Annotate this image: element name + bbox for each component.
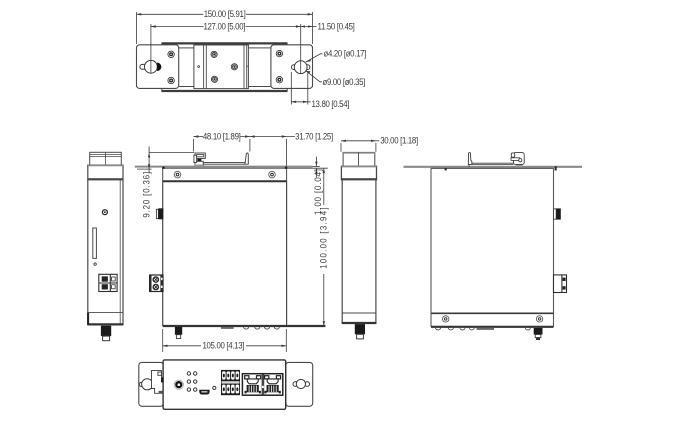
svg-text:13.80 [0.54]: 13.80 [0.54] (312, 98, 350, 109)
svg-text:48.10 [1.89]: 48.10 [1.89] (203, 131, 241, 142)
svg-text:31.70 [1.25]: 31.70 [1.25] (295, 131, 333, 142)
svg-text:11.50 [0.45]: 11.50 [0.45] (318, 21, 355, 32)
svg-text:30.00 [1.18]: 30.00 [1.18] (380, 135, 418, 146)
svg-text:ø9.00 [ø0.35]: ø9.00 [ø0.35] (323, 76, 366, 87)
svg-text:150.00 [5.91]: 150.00 [5.91] (204, 9, 246, 20)
svg-text:9.20 [0.36]: 9.20 [0.36] (141, 171, 152, 218)
svg-text:100.00 [3.94]: 100.00 [3.94] (318, 206, 329, 269)
svg-text:127.00 [5.00]: 127.00 [5.00] (203, 21, 245, 32)
svg-text:105.00 [4.13]: 105.00 [4.13] (202, 340, 244, 351)
svg-text:ø4.20 [ø0.17]: ø4.20 [ø0.17] (324, 48, 367, 59)
